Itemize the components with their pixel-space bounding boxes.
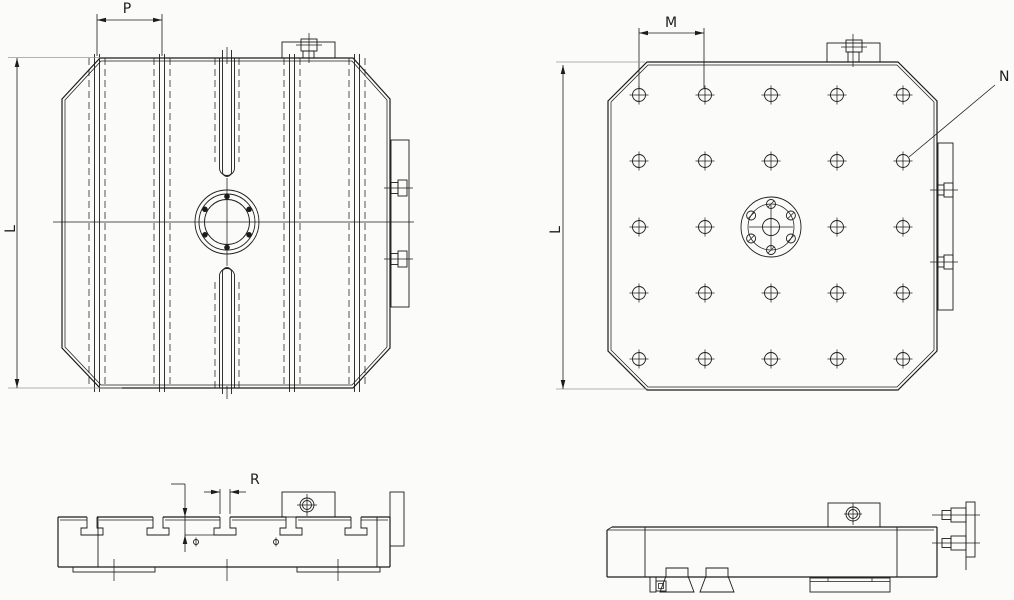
view-top-plan-holes: M N L bbox=[548, 15, 1009, 390]
callout-n: N bbox=[909, 69, 1009, 157]
plate-outline-inner bbox=[65, 61, 387, 385]
bottom-pad bbox=[810, 578, 890, 592]
end-stop-assembly bbox=[932, 502, 980, 570]
bolt-dot bbox=[224, 245, 230, 251]
body-edges bbox=[607, 527, 937, 577]
bolt-dot bbox=[202, 207, 208, 213]
leader-line bbox=[909, 85, 995, 157]
view-top-plan-tslots: P L bbox=[3, 1, 414, 399]
bolt-dot bbox=[202, 232, 208, 238]
drawing-page: P L bbox=[0, 0, 1014, 600]
bolt-dot bbox=[224, 194, 230, 200]
bottom-bracket bbox=[650, 577, 666, 592]
side-stop-block-edge bbox=[390, 492, 404, 546]
rail-shoe bbox=[660, 568, 694, 592]
plate-outline bbox=[608, 62, 937, 390]
bolt-dot bbox=[246, 207, 252, 213]
dimension-r: R bbox=[204, 472, 260, 514]
plate-outline-inner bbox=[611, 65, 934, 387]
clamp-screw-neck bbox=[848, 52, 859, 62]
clamp-screw-neck bbox=[303, 51, 314, 58]
view-side bbox=[607, 502, 980, 592]
foot bbox=[297, 567, 380, 572]
view-front-section: R bbox=[58, 472, 404, 581]
callout-label-n: N bbox=[999, 69, 1009, 85]
dimension-label-l-right: L bbox=[548, 226, 564, 234]
clamp-block bbox=[282, 492, 335, 517]
dimension-slot-depth bbox=[171, 484, 214, 552]
dimension-label-p: P bbox=[123, 1, 131, 17]
side-stop-block bbox=[384, 140, 413, 307]
dimension-label-l-left: L bbox=[3, 225, 19, 233]
dimension-label-m: M bbox=[665, 15, 677, 31]
clamp-screw-head bbox=[846, 40, 862, 52]
dimension-p: P bbox=[97, 1, 162, 56]
plate-outline bbox=[62, 58, 390, 388]
dimension-label-r: R bbox=[250, 472, 260, 488]
dimension-m: M bbox=[639, 15, 704, 88]
rail-shoe bbox=[700, 568, 734, 592]
pin-hole bbox=[274, 538, 279, 547]
clamp-block bbox=[827, 34, 880, 67]
center-flange bbox=[741, 197, 801, 257]
body-edges bbox=[58, 517, 390, 567]
engineering-drawing: P L bbox=[0, 0, 1014, 600]
bolt-dot bbox=[246, 232, 252, 238]
pin-hole bbox=[194, 538, 199, 547]
clamp-block bbox=[828, 503, 880, 527]
